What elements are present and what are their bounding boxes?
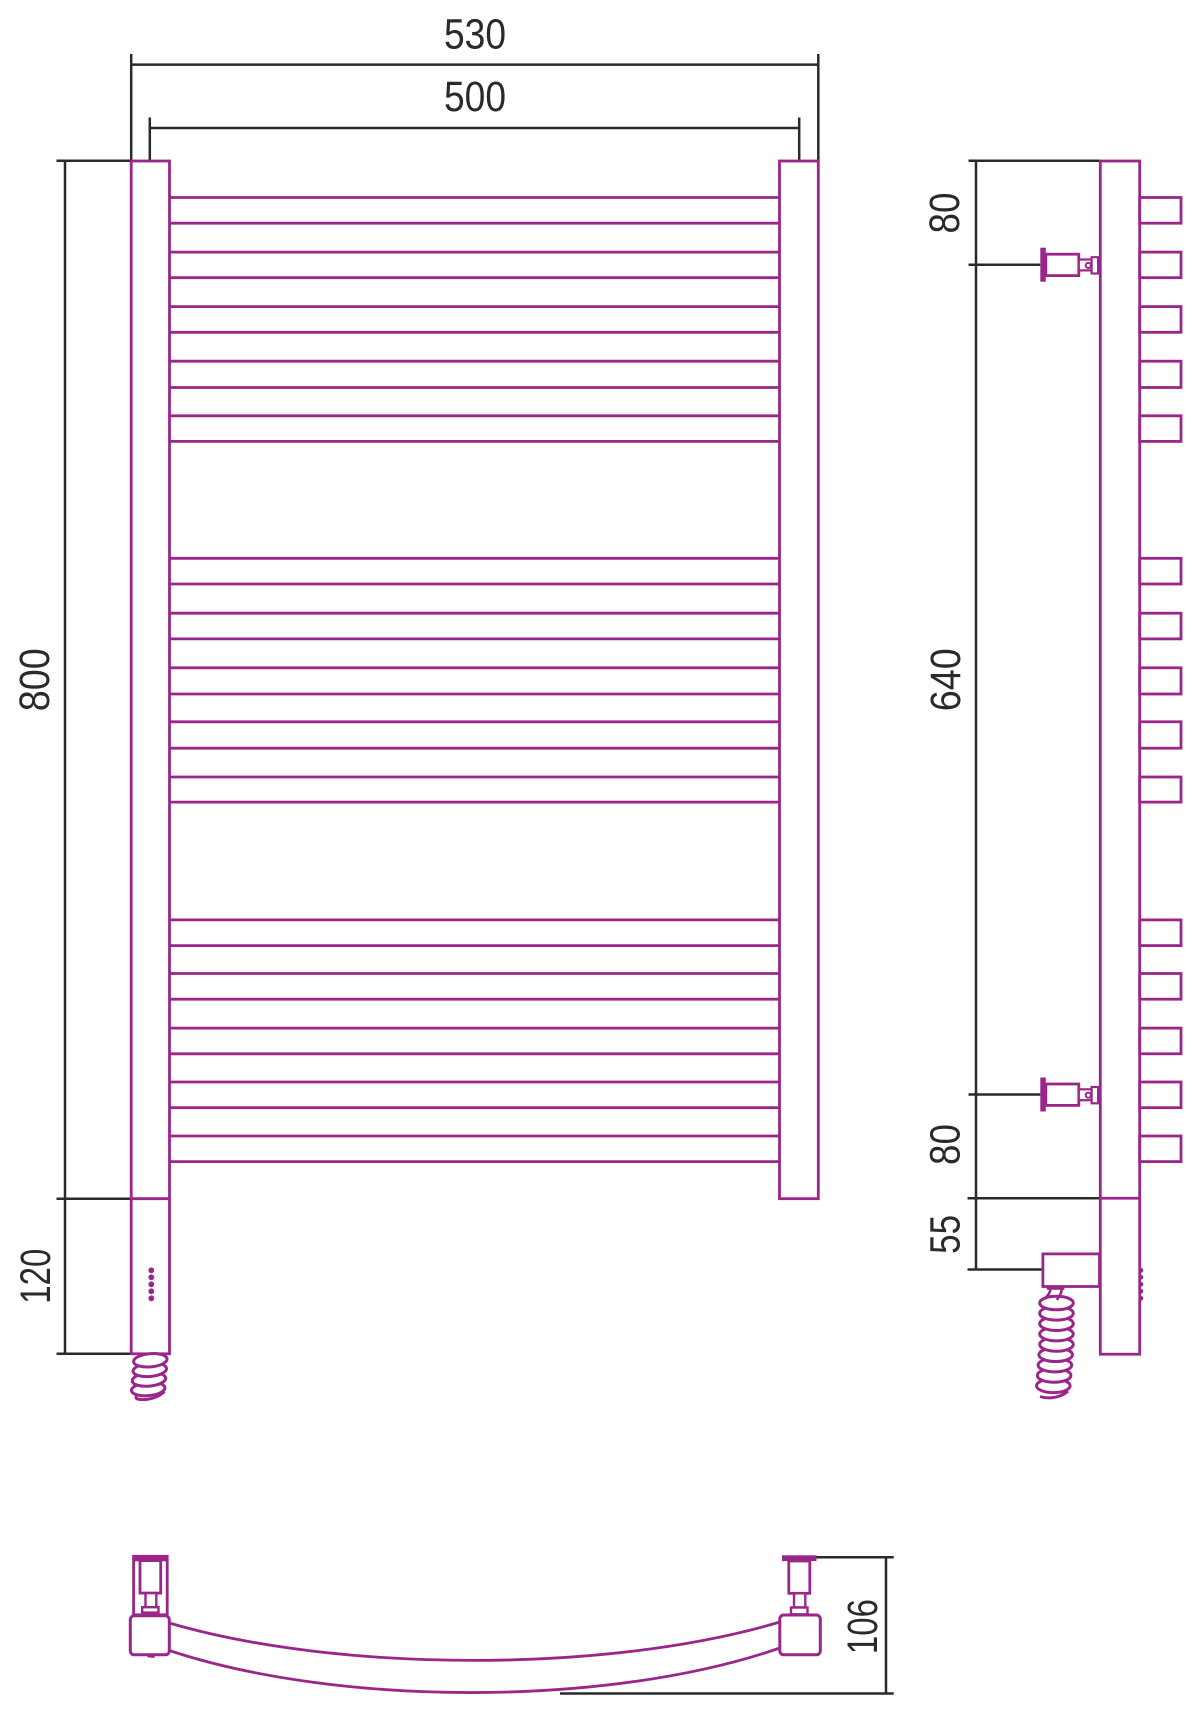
svg-text:80: 80 [921,193,969,234]
svg-text:106: 106 [839,1599,887,1654]
svg-text:55: 55 [921,1215,969,1254]
svg-text:500: 500 [444,73,506,121]
svg-text:640: 640 [922,648,970,711]
svg-text:530: 530 [444,10,506,58]
svg-text:120: 120 [12,1249,60,1304]
svg-text:80: 80 [921,1124,969,1165]
svg-text:800: 800 [11,648,59,711]
